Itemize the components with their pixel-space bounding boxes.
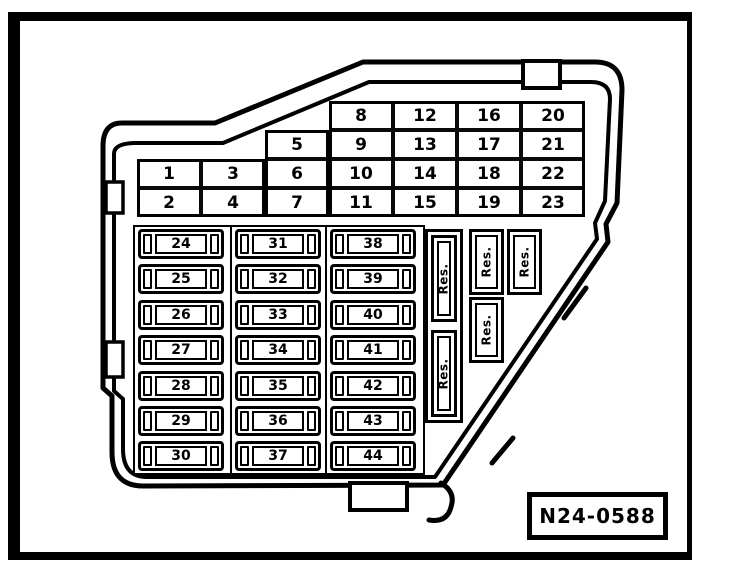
fuse-pin-right [307, 269, 316, 289]
reserve-slot: Res. [431, 330, 457, 417]
fuse-number: 25 [155, 269, 207, 289]
fuse-slot-35: 35 [235, 371, 321, 401]
fuse-pin-right [402, 446, 411, 466]
relay-cell-11: 11 [329, 188, 393, 217]
fuse-pin-left [240, 269, 249, 289]
fuse-pin-left [143, 340, 152, 360]
fuse-slot-32: 32 [235, 264, 321, 294]
fuse-pin-right [402, 234, 411, 254]
reserve-label: Res. [480, 314, 494, 345]
fuse-pin-right [307, 446, 316, 466]
fuse-pin-left [240, 446, 249, 466]
reserve-slot-window: Res. [437, 241, 451, 316]
fuse-slot-33: 33 [235, 300, 321, 330]
fuse-slot-40: 40 [330, 300, 416, 330]
relay-cell-6: 6 [265, 159, 329, 188]
fuse-number: 31 [252, 234, 304, 254]
fuse-pin-right [307, 234, 316, 254]
fuse-slot-30: 30 [138, 441, 224, 471]
relay-cell-12: 12 [393, 101, 457, 130]
relay-cell-18: 18 [457, 159, 521, 188]
fuse-slot-29: 29 [138, 406, 224, 436]
fuse-pin-left [335, 376, 344, 396]
fuse-slot-31: 31 [235, 229, 321, 259]
mount-tab-left-lower [106, 342, 123, 377]
fuse-pin-left [335, 234, 344, 254]
reserve-label: Res. [518, 246, 532, 277]
fuse-slot-28: 28 [138, 371, 224, 401]
fuse-number: 24 [155, 234, 207, 254]
reserve-slot: Res. [469, 229, 504, 295]
fuse-pin-right [210, 340, 219, 360]
reserve-slot-window: Res. [475, 235, 498, 289]
fuse-column-divider [230, 227, 232, 473]
relay-cell-7: 7 [265, 188, 329, 217]
fuse-pin-right [210, 446, 219, 466]
fuse-column-divider [325, 227, 327, 473]
fuse-pin-right [210, 411, 219, 431]
reserve-slot-window: Res. [513, 235, 536, 289]
fuse-pin-left [240, 305, 249, 325]
fuse-number: 28 [155, 376, 207, 396]
fuse-number: 32 [252, 269, 304, 289]
fuse-number: 29 [155, 411, 207, 431]
mount-tab-top [523, 61, 560, 88]
fuse-slot-36: 36 [235, 406, 321, 436]
fuse-pin-left [143, 446, 152, 466]
relay-cell-17: 17 [457, 130, 521, 159]
relay-cell-2: 2 [137, 188, 201, 217]
reserve-label: Res. [480, 246, 494, 277]
fuse-number: 43 [347, 411, 399, 431]
relay-cell-23: 23 [521, 188, 585, 217]
fuse-number: 27 [155, 340, 207, 360]
relay-cell-5: 5 [265, 130, 329, 159]
fuse-pin-right [210, 305, 219, 325]
fuse-number: 34 [252, 340, 304, 360]
reserve-slot: Res. [507, 229, 542, 295]
mount-tab-left-upper [106, 182, 123, 213]
fuse-pin-left [143, 269, 152, 289]
fuse-number: 36 [252, 411, 304, 431]
fuse-slot-42: 42 [330, 371, 416, 401]
fuse-pin-left [240, 376, 249, 396]
relay-cell-20: 20 [521, 101, 585, 130]
fuse-pin-right [402, 305, 411, 325]
reserve-group: Res.Res. [425, 229, 463, 423]
relay-cell-15: 15 [393, 188, 457, 217]
fuse-number: 39 [347, 269, 399, 289]
reserve-slot-window: Res. [437, 336, 451, 411]
fuse-slot-39: 39 [330, 264, 416, 294]
fuse-slot-24: 24 [138, 229, 224, 259]
fuse-pin-left [143, 376, 152, 396]
relay-cell-4: 4 [201, 188, 265, 217]
corner-foot [429, 483, 452, 520]
reserve-slot: Res. [431, 235, 457, 322]
relay-cell-13: 13 [393, 130, 457, 159]
mount-tab-bottom [350, 483, 407, 510]
fuse-pin-right [210, 234, 219, 254]
fuse-slot-26: 26 [138, 300, 224, 330]
fuse-slot-34: 34 [235, 335, 321, 365]
fuse-number: 40 [347, 305, 399, 325]
relay-cell-1: 1 [137, 159, 201, 188]
fuse-pin-left [335, 305, 344, 325]
fuse-pin-left [335, 269, 344, 289]
fuse-pin-right [307, 376, 316, 396]
relay-cell-9: 9 [329, 130, 393, 159]
relay-cell-3: 3 [201, 159, 265, 188]
reserve-slot-window: Res. [475, 303, 498, 357]
fuse-pin-right [402, 411, 411, 431]
part-number-label: N24-0588 [527, 492, 668, 540]
relay-grid: 2322212019181716151413121110987654321 [137, 101, 585, 217]
reserve-label: Res. [437, 358, 451, 389]
fuse-slot-41: 41 [330, 335, 416, 365]
relay-cell-10: 10 [329, 159, 393, 188]
fuse-pin-right [402, 269, 411, 289]
fuse-pin-right [210, 376, 219, 396]
fuse-number: 42 [347, 376, 399, 396]
relay-cell-21: 21 [521, 130, 585, 159]
fuse-pin-left [240, 411, 249, 431]
fuse-number: 33 [252, 305, 304, 325]
fuse-pin-right [402, 340, 411, 360]
fuse-slot-37: 37 [235, 441, 321, 471]
fuse-number: 30 [155, 446, 207, 466]
fuse-slot-43: 43 [330, 406, 416, 436]
relay-cell-22: 22 [521, 159, 585, 188]
relay-cell-16: 16 [457, 101, 521, 130]
fuse-slot-44: 44 [330, 441, 416, 471]
fuse-pin-right [402, 376, 411, 396]
relay-cell-8: 8 [329, 101, 393, 130]
edge-notch-lower [492, 438, 513, 463]
fuse-number: 41 [347, 340, 399, 360]
relay-cell-19: 19 [457, 188, 521, 217]
fuse-pin-left [335, 411, 344, 431]
fuse-slot-27: 27 [138, 335, 224, 365]
fuse-number: 26 [155, 305, 207, 325]
reserve-label: Res. [437, 263, 451, 294]
fuse-pin-left [335, 340, 344, 360]
fuse-slot-25: 25 [138, 264, 224, 294]
fuse-pin-right [307, 340, 316, 360]
fuse-pin-left [143, 234, 152, 254]
relay-cell-14: 14 [393, 159, 457, 188]
fuse-pin-left [335, 446, 344, 466]
fuse-number: 37 [252, 446, 304, 466]
fuse-number: 44 [347, 446, 399, 466]
fuse-number: 38 [347, 234, 399, 254]
fuse-pin-left [143, 411, 152, 431]
fuse-pin-right [307, 305, 316, 325]
fuse-pin-left [240, 234, 249, 254]
fuse-pin-right [307, 411, 316, 431]
fuse-slot-38: 38 [330, 229, 416, 259]
fuse-pin-left [143, 305, 152, 325]
reserve-slot: Res. [469, 297, 504, 363]
fusebox-diagram: 2322212019181716151413121110987654321 24… [0, 0, 736, 580]
fuse-block: 2425262728293031323334353637383940414243… [133, 225, 425, 475]
fuse-pin-right [210, 269, 219, 289]
fuse-pin-left [240, 340, 249, 360]
fuse-number: 35 [252, 376, 304, 396]
